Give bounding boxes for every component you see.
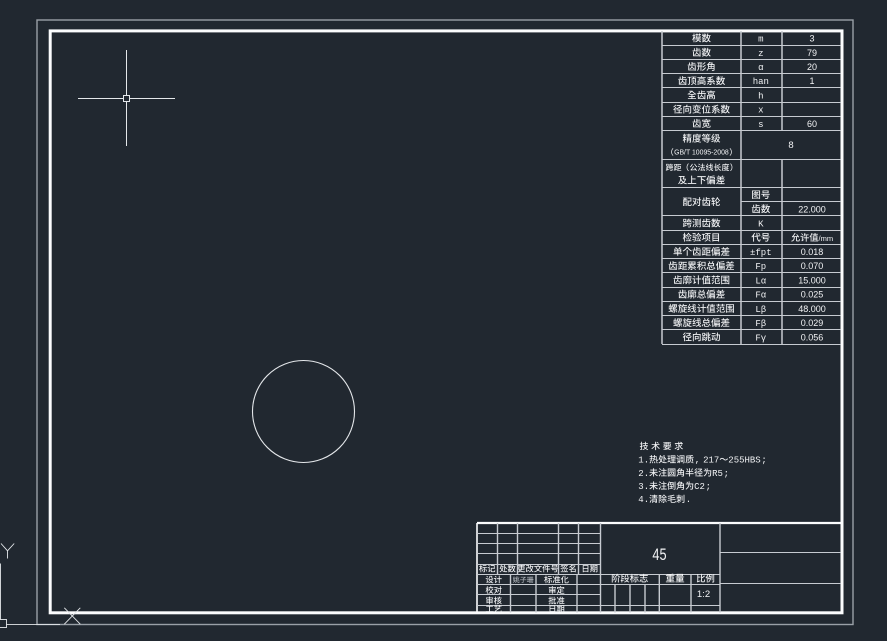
svg-text:z: z bbox=[758, 49, 763, 59]
svg-text:m: m bbox=[758, 35, 763, 45]
svg-text:Lβ: Lβ bbox=[755, 305, 766, 315]
svg-text:α: α bbox=[758, 63, 764, 73]
svg-text:1: 1 bbox=[810, 76, 815, 86]
svg-text:han: han bbox=[753, 77, 769, 87]
svg-text:h: h bbox=[758, 92, 763, 102]
svg-text:45: 45 bbox=[652, 545, 666, 564]
svg-text:Lα: Lα bbox=[755, 276, 766, 286]
svg-text:Fβ: Fβ bbox=[755, 319, 766, 329]
svg-text:48.000: 48.000 bbox=[798, 304, 826, 314]
svg-text:8: 8 bbox=[788, 140, 793, 151]
svg-text:3.: 3. bbox=[638, 482, 649, 492]
svg-text:x: x bbox=[758, 106, 763, 116]
svg-text:1:2: 1:2 bbox=[697, 589, 710, 600]
svg-text:K: K bbox=[758, 220, 764, 230]
svg-text:2.: 2. bbox=[638, 469, 649, 479]
svg-text:;: ; bbox=[706, 482, 711, 492]
svg-text:60: 60 bbox=[807, 119, 817, 129]
svg-text:±fpt: ±fpt bbox=[750, 248, 772, 258]
svg-text:0.070: 0.070 bbox=[801, 261, 824, 271]
svg-text:1.: 1. bbox=[638, 456, 649, 466]
svg-text:0.029: 0.029 bbox=[801, 318, 824, 328]
svg-text:s: s bbox=[758, 120, 763, 130]
svg-text:3: 3 bbox=[810, 34, 815, 44]
svg-text:,: , bbox=[695, 456, 700, 466]
svg-text:79: 79 bbox=[807, 48, 817, 58]
svg-text:15.000: 15.000 bbox=[798, 275, 826, 285]
svg-text:4.: 4. bbox=[638, 495, 649, 505]
svg-text:20: 20 bbox=[807, 62, 817, 72]
svg-text:.: . bbox=[686, 495, 691, 505]
svg-text:255HBS: 255HBS bbox=[728, 456, 760, 466]
svg-text:R5: R5 bbox=[712, 469, 723, 479]
svg-text:0.025: 0.025 bbox=[801, 290, 824, 300]
svg-text:C2: C2 bbox=[694, 482, 705, 492]
svg-text:0.056: 0.056 bbox=[801, 332, 824, 342]
svg-text:22.000: 22.000 bbox=[798, 204, 826, 214]
svg-text:;: ; bbox=[761, 456, 766, 466]
svg-text:Fp: Fp bbox=[755, 262, 766, 272]
svg-text:/mm: /mm bbox=[819, 234, 834, 243]
svg-text:217: 217 bbox=[703, 456, 719, 466]
svg-text:0.018: 0.018 bbox=[801, 247, 824, 257]
svg-text:;: ; bbox=[724, 469, 729, 479]
svg-text:Fγ: Fγ bbox=[755, 333, 766, 343]
svg-text:Fα: Fα bbox=[755, 291, 766, 301]
svg-text:GB/T 10095-2008: GB/T 10095-2008 bbox=[674, 150, 729, 157]
